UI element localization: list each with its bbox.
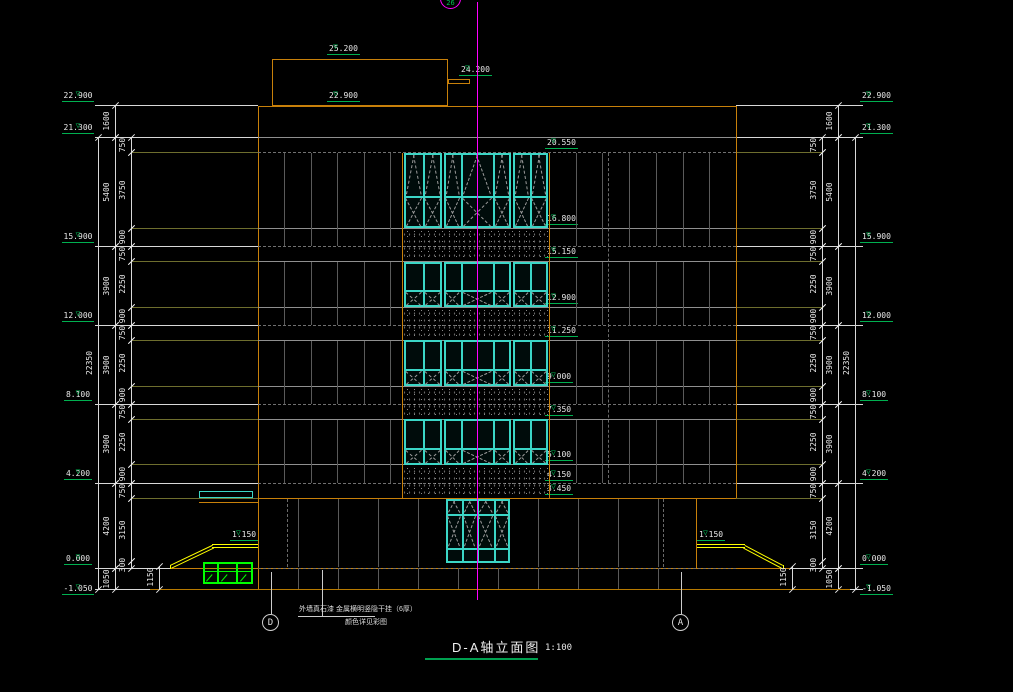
panel-line — [337, 341, 338, 404]
building-right-wall — [736, 106, 737, 498]
railing — [697, 544, 745, 548]
dim-text: 3900 — [825, 422, 835, 466]
ext-stub-left — [131, 464, 258, 465]
panel-line — [337, 153, 338, 246]
level-triangle-icon: ▽ — [866, 232, 871, 240]
axis-bubble-a: A — [672, 614, 689, 631]
dim-text: 300 — [809, 543, 819, 587]
level-label: -1.050 — [62, 584, 95, 595]
panel-line — [683, 341, 684, 404]
dim-text: 5400 — [825, 170, 835, 214]
ext-stub-left — [131, 340, 258, 341]
ramp-dim-text: 1150 — [146, 555, 156, 599]
level-label: -1.050 — [860, 584, 893, 595]
panel-line — [284, 153, 285, 246]
base-panel-line — [418, 568, 419, 589]
level-triangle-icon: ▽ — [76, 232, 81, 240]
storefront-mullion — [236, 563, 238, 583]
panel-line — [683, 420, 684, 483]
ramp-dim-line — [159, 566, 160, 589]
base-panel-line — [618, 568, 619, 589]
panel-line — [390, 262, 391, 325]
axis-bubble-d: D — [262, 614, 279, 631]
panel-line — [390, 153, 391, 246]
hidden-line — [608, 153, 609, 483]
window-mullion — [461, 155, 463, 226]
podium-panel-line — [538, 499, 539, 567]
panel-line — [656, 420, 657, 483]
window-mullion — [530, 264, 532, 305]
canopy-slab — [199, 491, 253, 498]
axis-leader-a — [681, 572, 682, 614]
level-triangle-icon: ▽ — [551, 214, 556, 222]
window-kick-rail — [448, 548, 508, 550]
ramp-dim-line — [792, 566, 793, 589]
stone-texture-band — [404, 229, 548, 260]
hidden-line — [287, 499, 288, 567]
level-label: 21.300 — [860, 123, 893, 134]
level-triangle-icon: ▽ — [551, 138, 556, 146]
ext-line-right — [736, 404, 863, 405]
dim-text: 4200 — [102, 504, 112, 548]
window-rail — [406, 369, 440, 371]
dim-text: 750 — [809, 469, 819, 513]
dim-chain-line — [115, 105, 116, 589]
ext-stub-left — [131, 307, 258, 308]
dim-text: 22350 — [842, 341, 852, 385]
window-mullion — [461, 421, 463, 463]
panel-line — [683, 262, 684, 325]
dim-chain-line — [838, 105, 839, 589]
base-panel-line — [498, 568, 499, 589]
panel-line — [602, 420, 603, 483]
panel-line — [683, 153, 684, 246]
dim-text: 5400 — [102, 170, 112, 214]
dim-text: 750 — [118, 469, 128, 513]
panel-line — [311, 341, 312, 404]
dim-text: 1600 — [825, 99, 835, 143]
panel-line — [629, 153, 630, 246]
level-triangle-icon: ▽ — [333, 44, 338, 52]
podium-panel-line — [418, 499, 419, 567]
dim-text: 3900 — [825, 264, 835, 308]
panel-line — [709, 420, 710, 483]
panel-line — [311, 262, 312, 325]
axis-bubble-26: 26 — [440, 0, 461, 9]
stone-texture-band — [404, 387, 548, 418]
level-triangle-icon: ▽ — [76, 123, 81, 131]
base-panel-line — [458, 568, 459, 589]
panel-line — [364, 262, 365, 325]
window-rail — [406, 290, 440, 292]
axis-bubble-a-label: A — [678, 618, 683, 628]
level-triangle-icon: ▽ — [866, 390, 871, 398]
level-triangle-icon: ▽ — [551, 326, 556, 334]
panel-line — [656, 153, 657, 246]
panel-line — [709, 262, 710, 325]
window-mullion — [423, 342, 425, 384]
axis-bubble-26-label: 26 — [441, 0, 460, 7]
panel-line — [337, 420, 338, 483]
canopy-level-line — [199, 502, 258, 503]
level-triangle-icon: ▽ — [551, 470, 556, 478]
level-label: 1.150 — [697, 530, 725, 541]
base-panel-line — [298, 568, 299, 589]
base-line — [150, 589, 850, 590]
hidden-line — [663, 499, 664, 567]
level-label: 24.200 — [459, 65, 492, 76]
base-panel-line — [338, 568, 339, 589]
panel-line — [284, 341, 285, 404]
dim-text: 22350 — [85, 341, 95, 385]
level-triangle-icon: ▽ — [866, 469, 871, 477]
axis-bubble-d-label: D — [268, 618, 273, 628]
ext-line-right — [736, 137, 863, 138]
dim-chain-line — [822, 137, 823, 568]
panel-line — [311, 153, 312, 246]
level-triangle-icon: ▽ — [76, 469, 81, 477]
level-triangle-icon: ▽ — [76, 91, 81, 99]
window-mullion — [423, 421, 425, 463]
base-panel-line — [378, 568, 379, 589]
cw-frame-right — [549, 153, 550, 498]
ground-dashed-line — [258, 568, 736, 569]
dim-text: 3900 — [825, 343, 835, 387]
ramp-dim-text: 1150 — [779, 555, 789, 599]
podium-panel-line — [298, 499, 299, 567]
dim-text: 3900 — [102, 264, 112, 308]
panel-line — [284, 262, 285, 325]
level-label: 0.000 — [860, 554, 888, 565]
panel-line — [602, 153, 603, 246]
level-triangle-icon: ▽ — [551, 450, 556, 458]
roof-line — [258, 106, 736, 107]
level-triangle-icon: ▽ — [76, 311, 81, 319]
right-inset-wall — [696, 498, 697, 568]
storefront-mullion — [217, 563, 219, 583]
level-label: 8.100 — [860, 390, 888, 401]
level-triangle-icon: ▽ — [465, 65, 470, 73]
level-triangle-icon: ▽ — [551, 484, 556, 492]
panel-line — [576, 341, 577, 404]
window-mullion — [461, 264, 463, 305]
ext-line-right — [736, 483, 863, 484]
window-mullion — [530, 421, 532, 463]
dim-text: 3900 — [102, 343, 112, 387]
panel-line — [629, 341, 630, 404]
railing — [212, 544, 258, 548]
panel-line — [311, 420, 312, 483]
ext-stub-left — [131, 419, 258, 420]
dim-text: 750 — [809, 123, 819, 167]
window-mullion — [423, 264, 425, 305]
dim-chain-line — [131, 137, 132, 568]
panel-line — [602, 262, 603, 325]
podium-panel-line — [618, 499, 619, 567]
storefront-rail — [204, 571, 252, 572]
panel-line — [364, 153, 365, 246]
podium-panel-line — [578, 499, 579, 567]
podium-panel-line — [658, 499, 659, 567]
panel-line — [656, 262, 657, 325]
cw-frame-left — [402, 153, 403, 498]
level-triangle-icon: ▽ — [551, 405, 556, 413]
level-label: 15.900 — [860, 232, 893, 243]
base-panel-line — [578, 568, 579, 589]
level-triangle-icon: ▽ — [236, 530, 241, 538]
window-mullion — [461, 342, 463, 384]
dim-text: 750 — [118, 123, 128, 167]
dim-text: 1600 — [102, 99, 112, 143]
ext-stub-left — [131, 498, 258, 499]
axis-centerline — [477, 2, 478, 600]
panel-line — [364, 420, 365, 483]
level-triangle-icon: ▽ — [551, 293, 556, 301]
panel-line — [629, 262, 630, 325]
level-triangle-icon: ▽ — [76, 554, 81, 562]
ext-line-right — [736, 325, 863, 326]
panel-line — [390, 420, 391, 483]
dim-text: 1050 — [102, 557, 112, 601]
base-panel-line — [658, 568, 659, 589]
window-mullion — [493, 342, 495, 384]
panel-line — [390, 341, 391, 404]
level-label: 20.550 — [545, 138, 578, 149]
dim-text: 3750 — [809, 168, 819, 212]
window-mullion — [493, 421, 495, 463]
drawing-title: D-A轴立面图 — [452, 637, 540, 656]
podium-panel-line — [338, 499, 339, 567]
panel-line — [576, 153, 577, 246]
podium-panel-line — [378, 499, 379, 567]
dim-chain-line — [855, 137, 856, 589]
panel-line — [709, 341, 710, 404]
level-label: 25.200 — [327, 44, 360, 55]
ext-line-right — [736, 246, 863, 247]
level-triangle-icon: ▽ — [551, 247, 556, 255]
axis-leader-d — [271, 572, 272, 614]
dim-text: 1050 — [825, 557, 835, 601]
dim-text: 300 — [118, 543, 128, 587]
ext-stub-left — [131, 386, 258, 387]
level-triangle-icon: ▽ — [866, 91, 871, 99]
level-triangle-icon: ▽ — [866, 554, 871, 562]
stone-texture-band — [404, 308, 548, 339]
railing — [743, 545, 783, 569]
level-label: 12.000 — [860, 311, 893, 322]
panel-line — [576, 420, 577, 483]
band-line — [258, 137, 736, 138]
level-triangle-icon: ▽ — [703, 530, 708, 538]
title-underline — [425, 658, 538, 660]
panel-line — [337, 262, 338, 325]
rail-post — [170, 565, 171, 569]
panel-line — [629, 420, 630, 483]
panel-line — [709, 153, 710, 246]
facade-annotation-line2: 颜色详见彩图 — [345, 617, 387, 627]
window-rail — [406, 448, 440, 450]
panel-line — [602, 341, 603, 404]
stone-texture-band — [404, 466, 548, 497]
window-mullion — [530, 342, 532, 384]
level-triangle-icon: ▽ — [551, 372, 556, 380]
ext-stub-left — [131, 152, 258, 153]
facade-annotation-line1: 外墙真石漆 金属横明竖隐干挂（6厚） — [299, 604, 417, 614]
base-panel-line — [538, 568, 539, 589]
panel-line — [656, 341, 657, 404]
window-mullion — [493, 264, 495, 305]
ext-stub-left — [131, 261, 258, 262]
level-label: 22.900 — [860, 91, 893, 102]
level-triangle-icon: ▽ — [866, 123, 871, 131]
ext-stub-left — [131, 228, 258, 229]
level-label: 1.150 — [230, 530, 258, 541]
panel-line — [576, 262, 577, 325]
panel-line — [364, 341, 365, 404]
building-left-wall — [258, 106, 259, 589]
cad-elevation-drawing: 2235016005400390039003900420010507503750… — [0, 0, 1013, 692]
dim-chain-line — [98, 137, 99, 589]
ext-line-right — [736, 105, 863, 106]
panel-line — [284, 420, 285, 483]
drawing-scale: 1:100 — [545, 643, 572, 653]
level-label: 4.200 — [860, 469, 888, 480]
dim-text: 3750 — [118, 168, 128, 212]
level-triangle-icon: ▽ — [76, 390, 81, 398]
ext-line-left — [95, 105, 258, 106]
dim-text: 4200 — [825, 504, 835, 548]
level-triangle-icon: ▽ — [866, 311, 871, 319]
penthouse-outline — [272, 59, 448, 106]
dim-text: 3900 — [102, 422, 112, 466]
penthouse-ledge — [448, 79, 470, 84]
